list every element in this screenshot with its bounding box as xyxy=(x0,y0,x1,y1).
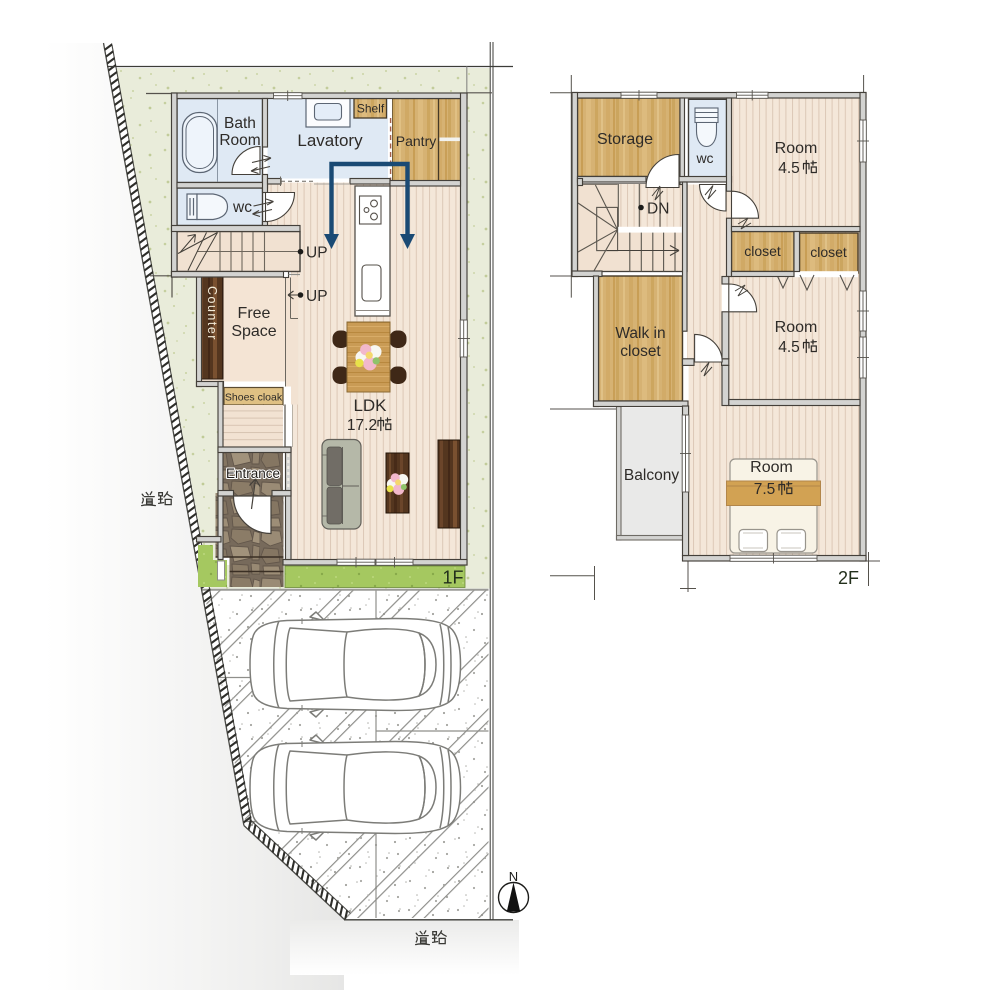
svg-text:Room: Room xyxy=(775,140,818,157)
svg-text:closet: closet xyxy=(810,244,847,260)
svg-text:17.2: 17.2 xyxy=(347,417,377,434)
svg-text:Space: Space xyxy=(231,323,276,340)
svg-text:1F: 1F xyxy=(443,568,464,588)
svg-text:Entrance: Entrance xyxy=(226,466,280,481)
svg-text:LDK: LDK xyxy=(353,396,387,415)
svg-text:Shoes cloak: Shoes cloak xyxy=(225,392,283,404)
svg-text:Lavatory: Lavatory xyxy=(297,131,363,150)
svg-text:Room: Room xyxy=(775,319,818,336)
svg-text:wc: wc xyxy=(695,150,713,166)
svg-text:Balcony: Balcony xyxy=(624,467,679,484)
svg-text:DN: DN xyxy=(647,201,669,218)
svg-text:wc: wc xyxy=(232,199,252,216)
svg-text:Pantry: Pantry xyxy=(396,133,436,149)
svg-text:closet: closet xyxy=(744,243,781,259)
svg-text:Storage: Storage xyxy=(597,131,653,148)
svg-text:7.5: 7.5 xyxy=(754,481,776,498)
svg-text:Room: Room xyxy=(219,132,260,149)
svg-text:UP: UP xyxy=(306,288,328,305)
svg-text:Bath: Bath xyxy=(224,115,256,132)
svg-text:closet: closet xyxy=(620,343,661,360)
svg-text:4.5: 4.5 xyxy=(778,160,800,177)
svg-text:UP: UP xyxy=(306,245,328,262)
svg-text:N: N xyxy=(509,869,518,884)
svg-text:4.5: 4.5 xyxy=(778,339,800,356)
svg-text:Room: Room xyxy=(750,459,793,476)
svg-text:Counter: Counter xyxy=(205,286,219,341)
svg-text:Free: Free xyxy=(238,305,271,322)
svg-text:2F: 2F xyxy=(838,568,859,588)
svg-text:Walk in: Walk in xyxy=(615,325,665,342)
svg-text:Shelf: Shelf xyxy=(357,102,385,116)
